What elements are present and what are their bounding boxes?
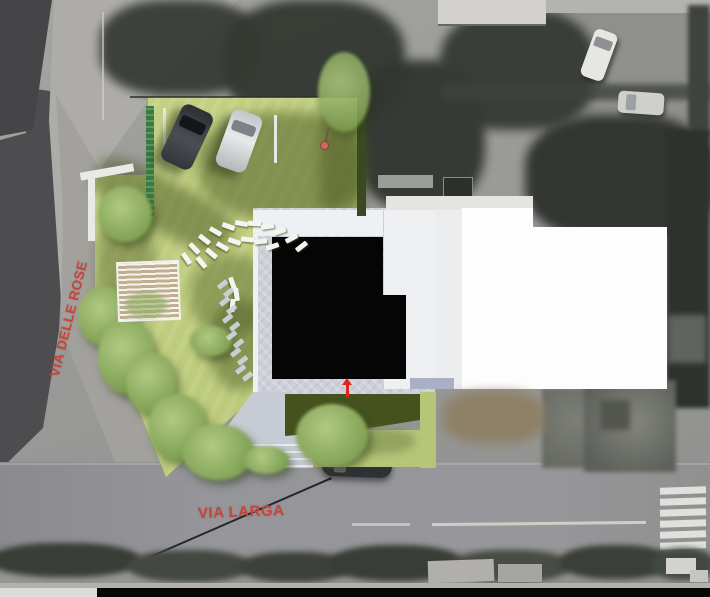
bare-ground-patch xyxy=(443,391,545,443)
bush xyxy=(243,446,289,474)
bottom-black-bar xyxy=(97,588,710,597)
rubble-texture xyxy=(668,315,706,363)
neighbor-roof-bottom xyxy=(690,570,708,582)
light-post xyxy=(274,115,277,163)
balloon-marker xyxy=(320,141,329,150)
bush xyxy=(190,326,232,356)
solar-panel-strip xyxy=(410,378,454,389)
lane-line-dash xyxy=(352,523,410,526)
street-tree-shadow xyxy=(600,400,630,430)
neighbor-roof xyxy=(438,0,546,26)
bottom-hedge xyxy=(0,543,140,577)
site-plan-aerial-view: VIA DELLE ROSE VIA LARGA xyxy=(0,0,710,597)
deck-chair xyxy=(248,221,261,226)
tree-canopy xyxy=(440,10,595,130)
hedge-right-edge xyxy=(688,5,710,137)
tree-shadow-right-band xyxy=(666,130,710,408)
retaining-wall xyxy=(88,175,95,241)
aerial-car-silver xyxy=(617,90,664,115)
bottom-white-sliver xyxy=(0,588,97,597)
garage-roof xyxy=(443,177,473,197)
neighbor-roof-bottom xyxy=(498,564,542,582)
street-tree xyxy=(584,380,676,472)
neighbor-roof-bottom xyxy=(428,559,495,583)
entrance-bush xyxy=(296,404,368,466)
neighbor-roof xyxy=(546,0,710,13)
garage-roof xyxy=(378,175,433,188)
fence-line xyxy=(442,84,710,100)
bush xyxy=(98,186,152,242)
lawn-strip-east xyxy=(420,392,436,468)
bottom-hedge xyxy=(128,550,250,582)
entrance-arrow-icon xyxy=(346,384,349,397)
bush xyxy=(182,424,254,480)
overhanging-branch xyxy=(318,52,370,132)
entrance-arrow-icon xyxy=(342,378,352,385)
utility-pole xyxy=(102,12,104,120)
pergola-planting xyxy=(125,292,167,318)
